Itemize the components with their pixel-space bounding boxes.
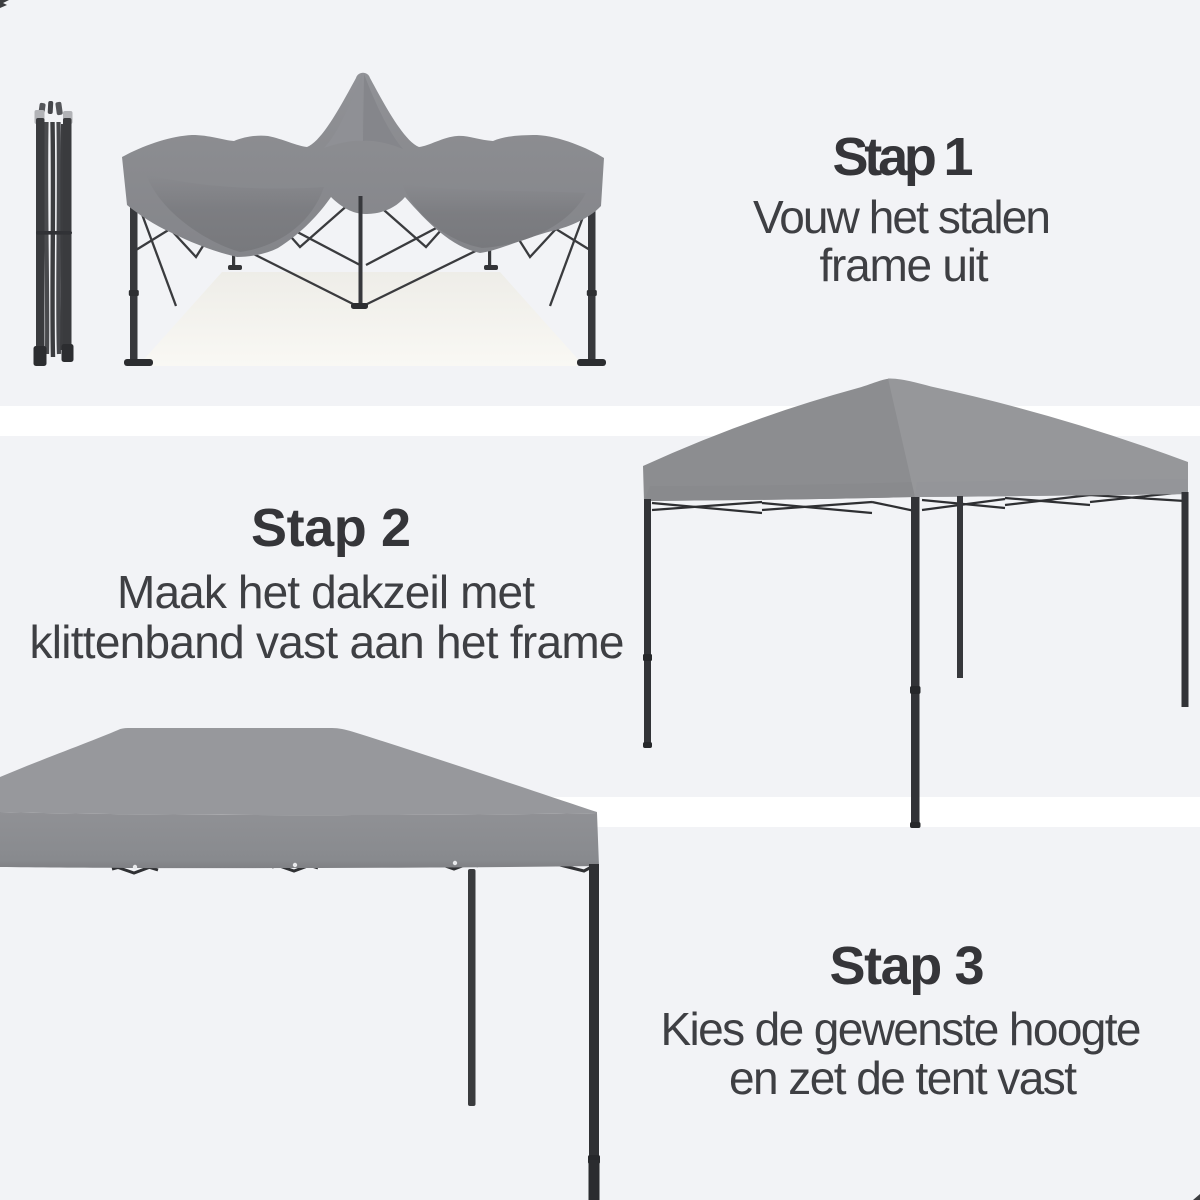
svg-text:frame uit: frame uit [820,239,989,291]
svg-text:Vouw het stalen: Vouw het stalen [753,191,1051,243]
svg-text:en zet de tent vast: en zet de tent vast [729,1052,1077,1104]
svg-text:Kies de gewenste hoogte: Kies de gewenste hoogte [661,1003,1142,1055]
svg-text:Stap 3: Stap 3 [830,936,985,996]
svg-text:klittenband vast aan het frame: klittenband vast aan het frame [30,616,625,668]
svg-text:Maak het dakzeil met: Maak het dakzeil met [117,566,535,618]
svg-text:Stap 1: Stap 1 [833,127,974,187]
svg-text:Stap 2: Stap 2 [251,498,411,558]
